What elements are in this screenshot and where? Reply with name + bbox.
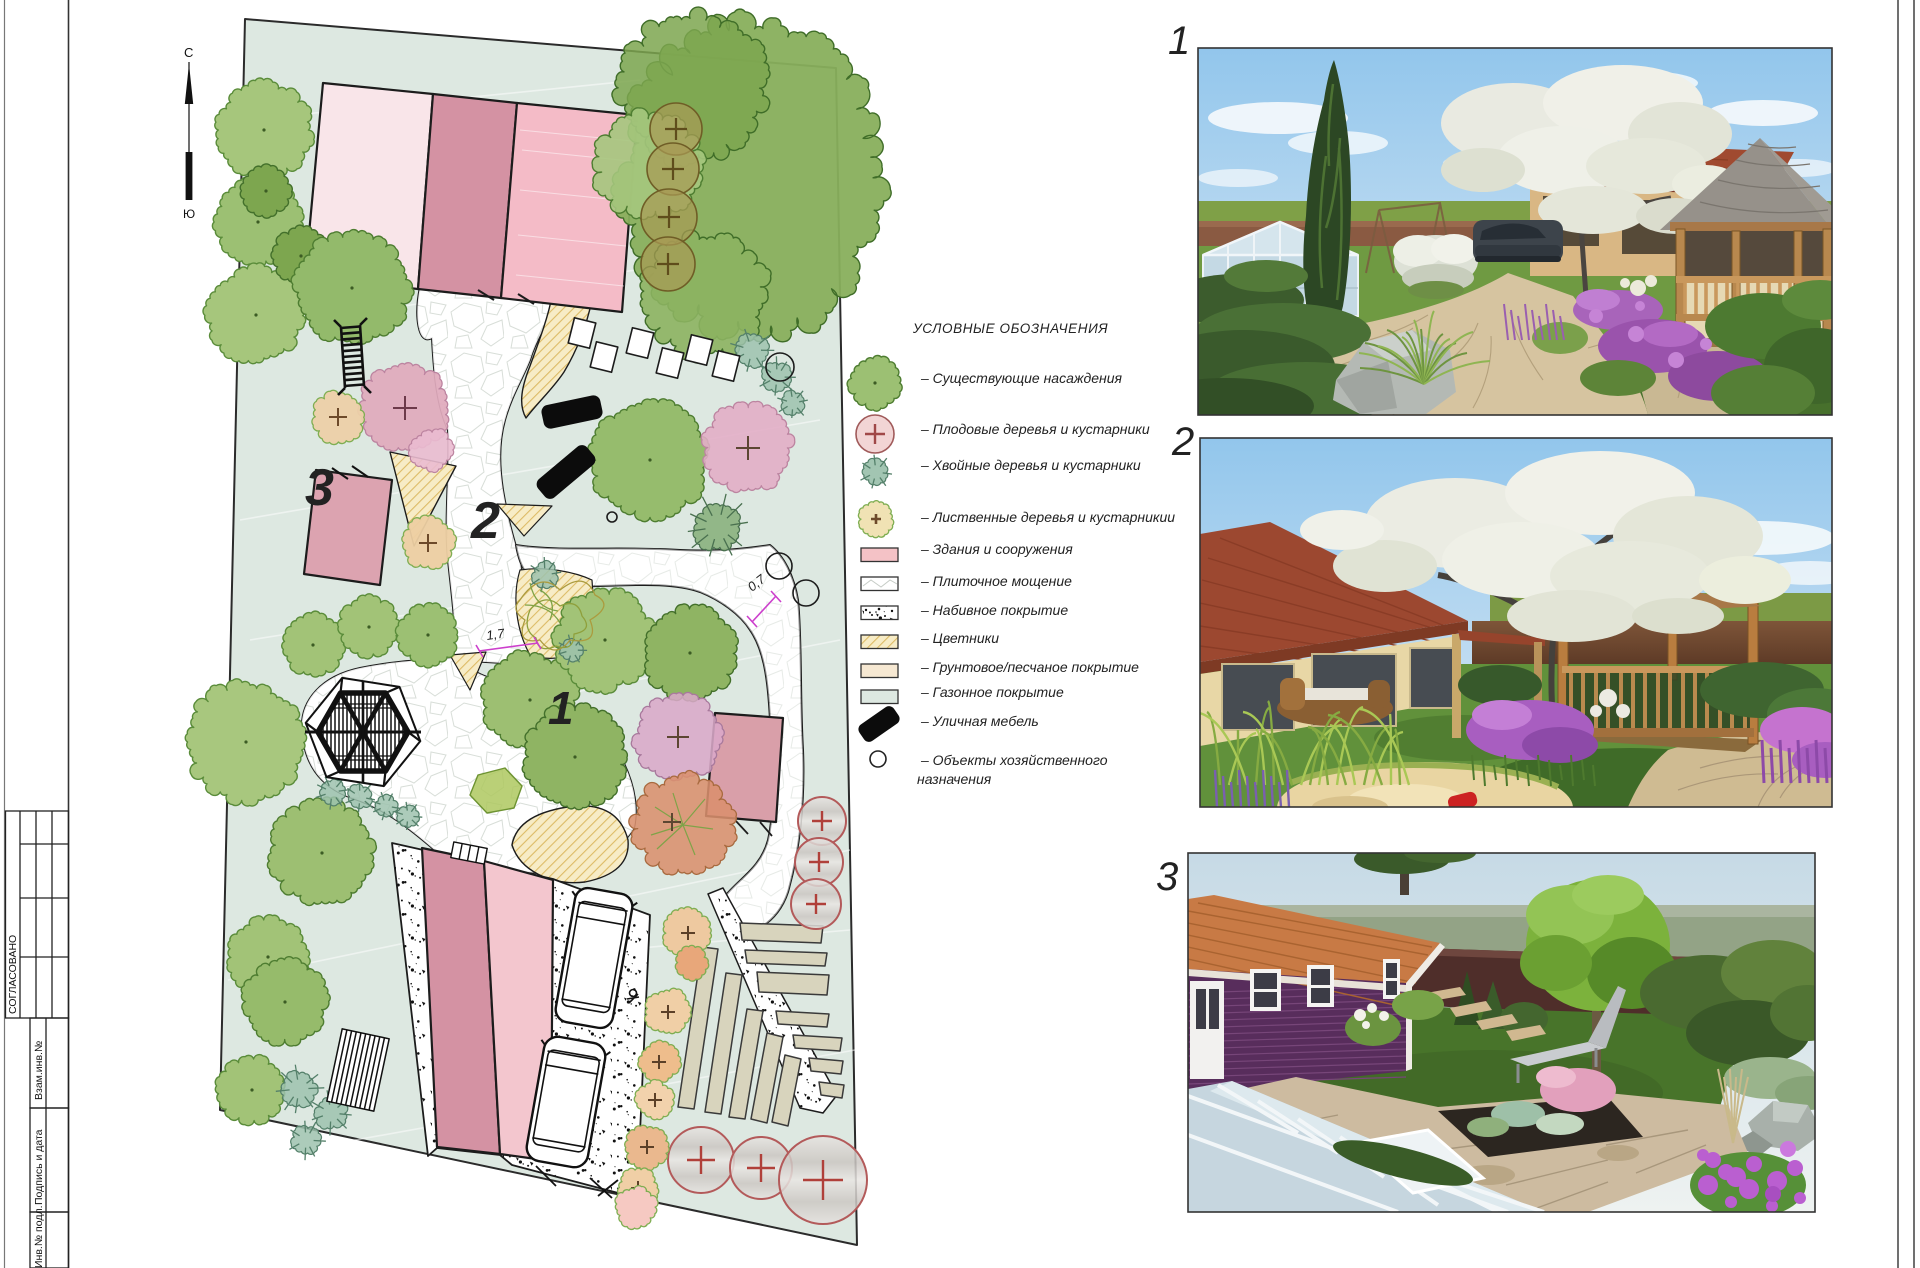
svg-text:Инв.№ подл.: Инв.№ подл. bbox=[33, 1206, 45, 1268]
svg-text:1: 1 bbox=[548, 682, 574, 734]
svg-text:УСЛОВНЫЕ ОБОЗНАЧЕНИЯ: УСЛОВНЫЕ ОБОЗНАЧЕНИЯ bbox=[912, 321, 1108, 336]
svg-text:– Грунтовое/песчаное покрытие: – Грунтовое/песчаное покрытие bbox=[920, 659, 1139, 675]
svg-text:– Существующие насаждения: – Существующие насаждения bbox=[920, 370, 1123, 386]
svg-text:– Плодовые деревья и кустарник: – Плодовые деревья и кустарники bbox=[920, 421, 1150, 437]
svg-text:Ю: Ю bbox=[183, 207, 195, 221]
svg-text:Подпись и дата: Подпись и дата bbox=[33, 1129, 45, 1205]
svg-text:– Плиточное мощение: – Плиточное мощение bbox=[920, 573, 1072, 589]
svg-text:– Лиственные деревья и кустарн: – Лиственные деревья и кустарникии bbox=[920, 509, 1175, 525]
svg-text:2: 2 bbox=[1171, 420, 1194, 464]
svg-text:– Хвойные деревья и кустарники: – Хвойные деревья и кустарники bbox=[920, 457, 1141, 473]
svg-text:– Уличная мебель: – Уличная мебель bbox=[920, 713, 1039, 729]
svg-text:С: С bbox=[184, 45, 193, 60]
svg-text:– Газонное покрытие: – Газонное покрытие bbox=[920, 684, 1064, 700]
svg-text:3: 3 bbox=[305, 459, 334, 517]
svg-text:1: 1 bbox=[1168, 19, 1190, 63]
svg-text:3: 3 bbox=[1156, 855, 1178, 899]
svg-text:назначения: назначения bbox=[917, 771, 992, 787]
svg-text:СОГЛАСОВАНО: СОГЛАСОВАНО bbox=[7, 935, 19, 1014]
svg-text:2: 2 bbox=[470, 492, 500, 550]
svg-text:– Набивное покрытие: – Набивное покрытие bbox=[920, 602, 1068, 618]
svg-text:– Объекты хозяйственного: – Объекты хозяйственного bbox=[920, 752, 1108, 768]
svg-text:1,7: 1,7 bbox=[485, 625, 506, 642]
svg-text:– Здания и сооружения: – Здания и сооружения bbox=[920, 541, 1073, 557]
svg-text:– Цветники: – Цветники bbox=[920, 630, 999, 646]
svg-text:Взам.инв.№: Взам.инв.№ bbox=[33, 1041, 45, 1100]
